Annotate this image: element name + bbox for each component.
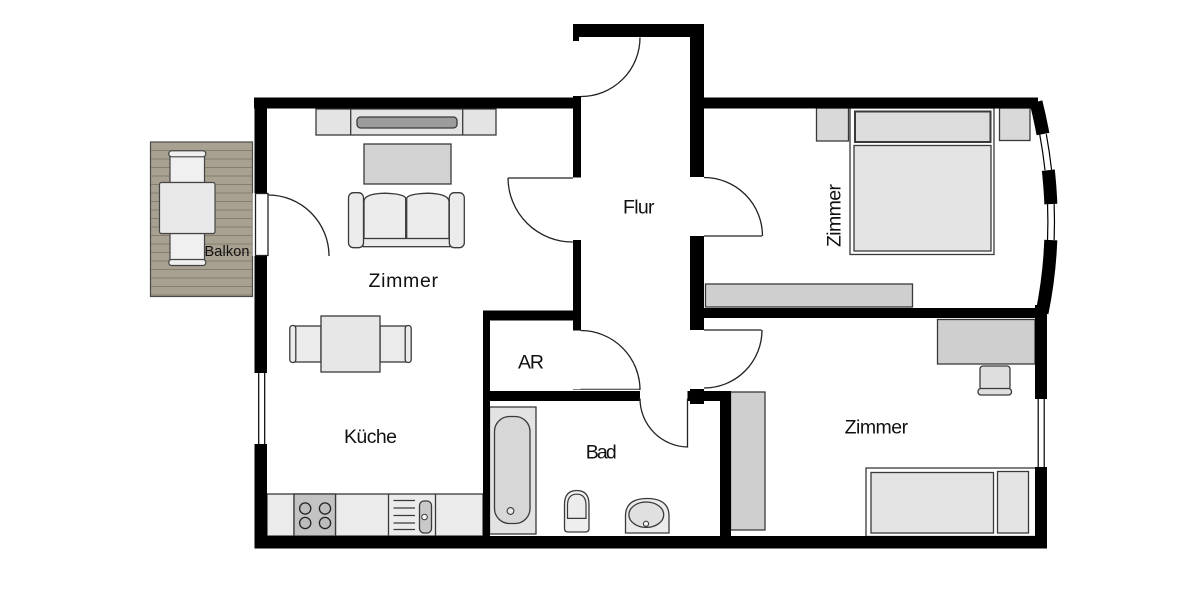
svg-text:Flur: Flur (623, 197, 655, 219)
svg-text:Zimmer: Zimmer (824, 184, 846, 248)
svg-text:AR: AR (518, 351, 544, 373)
svg-text:Balkon: Balkon (205, 244, 250, 260)
svg-text:Zimmer: Zimmer (369, 270, 439, 292)
svg-text:Küche: Küche (344, 426, 397, 448)
svg-text:Bad: Bad (586, 441, 617, 463)
svg-text:Zimmer: Zimmer (845, 417, 909, 439)
